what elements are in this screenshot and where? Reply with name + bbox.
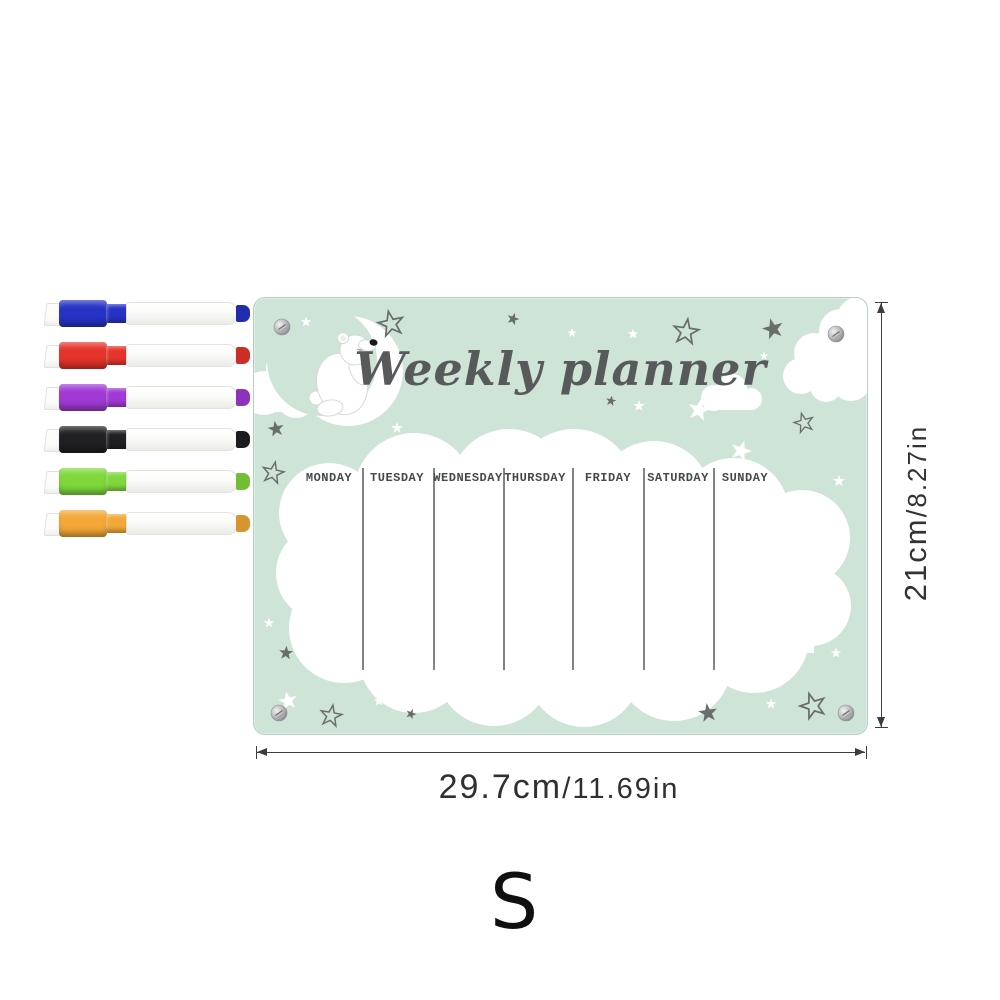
star-icon	[760, 316, 785, 341]
height-inches: 8.27in	[902, 425, 932, 508]
product-photo: Weekly planner MONDAY TUESDAY WEDNESDAY …	[0, 0, 1000, 1000]
star-icon	[567, 328, 577, 337]
star-icon	[633, 400, 644, 411]
marker-cap-nose	[106, 472, 127, 491]
height-dimension-arrow-up	[877, 303, 885, 313]
width-dimension-arrow-left	[257, 748, 267, 756]
marker-barrel	[126, 470, 237, 493]
day-label-sunday: SUNDAY	[722, 471, 768, 485]
marker-cap-nose	[106, 304, 127, 323]
star-icon	[831, 647, 841, 657]
marker-end-plug	[236, 347, 250, 364]
marker-purple	[45, 384, 251, 412]
star-icon	[628, 328, 638, 338]
marker-barrel	[126, 302, 237, 325]
marker-barrel	[126, 344, 237, 367]
dimension-separator: /	[562, 772, 572, 805]
marker-barrel	[126, 512, 237, 535]
marker-cap	[59, 300, 107, 327]
marker-end-plug	[236, 389, 250, 406]
height-dimension-tick-bottom	[875, 727, 888, 728]
day-label-thursday: THURSDAY	[504, 471, 566, 485]
width-cm: 29.7cm	[439, 768, 563, 806]
dimension-separator: /	[901, 508, 932, 518]
height-cm: 21cm	[898, 517, 933, 601]
marker-cap	[59, 384, 107, 411]
marker-blue	[45, 300, 251, 328]
marker-cap-nose	[106, 346, 127, 365]
star-icon	[672, 317, 700, 344]
marker-orange	[45, 510, 251, 538]
day-label-friday: FRIDAY	[585, 471, 631, 485]
marker-end-plug	[236, 305, 250, 322]
width-dimension-label: 29.7cm/11.69in	[359, 768, 759, 807]
marker-black	[45, 426, 251, 454]
screw-icon	[828, 326, 844, 342]
star-icon	[261, 460, 286, 484]
planner-board: Weekly planner MONDAY TUESDAY WEDNESDAY …	[253, 297, 868, 735]
width-dimension-arrow-right	[855, 748, 865, 756]
star-icon	[792, 411, 815, 433]
star-icon	[319, 703, 343, 726]
height-dimension-line	[881, 303, 882, 727]
day-label-wednesday: WEDNESDAY	[433, 471, 502, 485]
star-icon	[391, 422, 402, 433]
star-icon	[506, 311, 521, 326]
board-title: Weekly planner	[254, 342, 867, 396]
star-icon	[833, 475, 845, 487]
marker-cap-nose	[106, 388, 127, 407]
star-icon	[264, 617, 274, 627]
marker-barrel	[126, 386, 237, 409]
marker-end-plug	[236, 473, 250, 490]
width-dimension-line	[257, 752, 865, 753]
width-inches: 11.69in	[572, 773, 679, 805]
star-icon	[797, 690, 828, 720]
marker-cap	[59, 426, 107, 453]
marker-end-plug	[236, 431, 250, 448]
width-dimension-tick-right	[866, 746, 867, 759]
marker-end-plug	[236, 515, 250, 532]
screw-icon	[274, 319, 290, 335]
day-label-saturday: SATURDAY	[647, 471, 709, 485]
screw-icon	[271, 705, 287, 721]
marker-red	[45, 342, 251, 370]
day-label-monday: MONDAY	[306, 471, 352, 485]
marker-cap-nose	[106, 430, 127, 449]
marker-barrel	[126, 428, 237, 451]
marker-cap	[59, 342, 107, 369]
star-icon	[766, 698, 776, 708]
screw-icon	[838, 705, 854, 721]
marker-cap	[59, 468, 107, 495]
day-label-tuesday: TUESDAY	[370, 471, 424, 485]
height-dimension-arrow-down	[877, 717, 885, 727]
star-icon	[267, 419, 285, 437]
marker-cap	[59, 510, 107, 537]
star-icon	[278, 645, 293, 660]
height-dimension-label: 21cm/8.27in	[898, 373, 940, 653]
marker-green	[45, 468, 251, 496]
marker-cap-nose	[106, 514, 127, 533]
size-label: S	[490, 864, 538, 940]
star-icon	[605, 395, 617, 407]
